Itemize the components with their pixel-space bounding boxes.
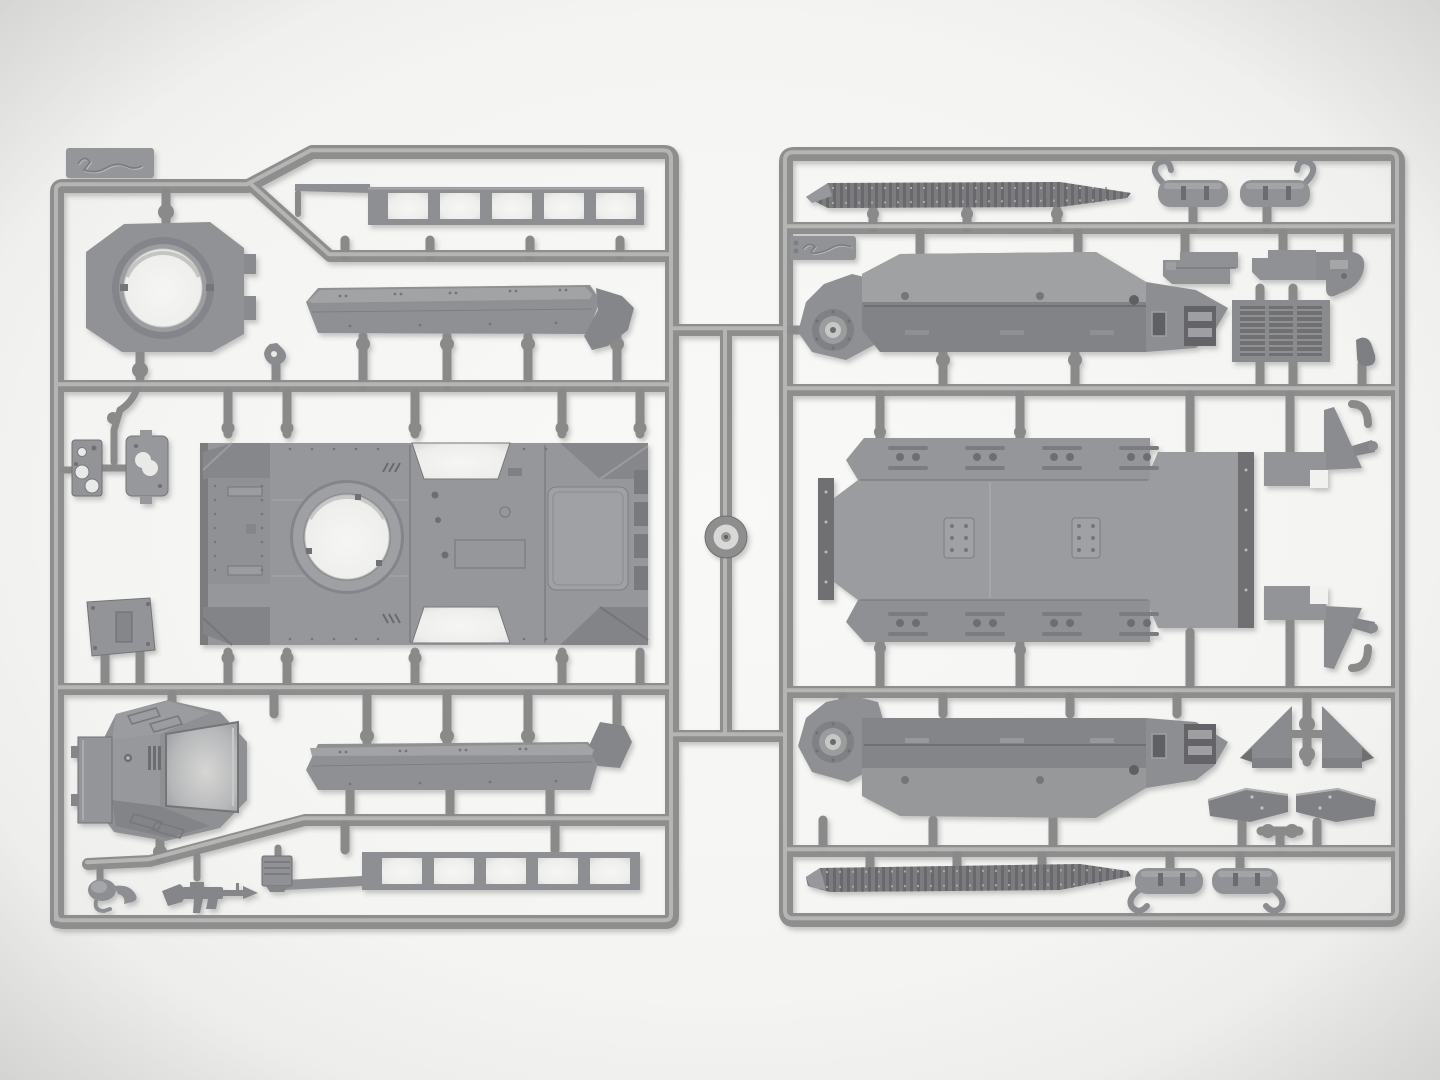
vignette-overlay — [0, 0, 1440, 1080]
sprue-photo — [0, 0, 1440, 1080]
